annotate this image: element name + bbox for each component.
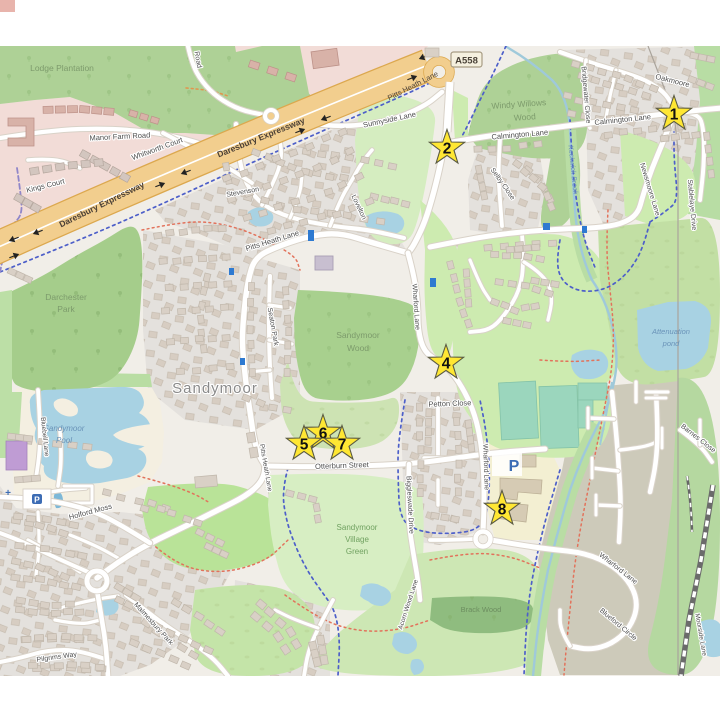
- svg-text:Wood: Wood: [347, 343, 369, 353]
- svg-text:5: 5: [300, 437, 309, 454]
- svg-text:Green: Green: [346, 547, 368, 556]
- svg-text:Pool: Pool: [56, 436, 72, 445]
- svg-text:Sandymoor: Sandymoor: [337, 523, 378, 532]
- svg-text:7: 7: [338, 437, 347, 454]
- svg-text:2: 2: [443, 141, 452, 158]
- svg-text:Park: Park: [57, 304, 75, 314]
- svg-text:1: 1: [670, 107, 679, 124]
- svg-text:pond: pond: [662, 339, 681, 348]
- svg-text:P: P: [509, 458, 520, 475]
- svg-text:P: P: [34, 495, 40, 505]
- svg-text:Sandymoor: Sandymoor: [336, 330, 380, 340]
- svg-text:4: 4: [442, 356, 451, 373]
- svg-text:Sandymoor: Sandymoor: [172, 380, 258, 397]
- svg-text:Wood: Wood: [513, 111, 536, 123]
- svg-text:Attenuation: Attenuation: [651, 327, 690, 336]
- svg-text:Lodge Plantation: Lodge Plantation: [30, 63, 94, 73]
- svg-text:Sandymoor: Sandymoor: [44, 424, 85, 433]
- svg-text:Darchester: Darchester: [45, 292, 87, 302]
- svg-text:Petton Close: Petton Close: [428, 398, 471, 408]
- svg-text:8: 8: [498, 502, 507, 519]
- svg-text:Otterburn Street: Otterburn Street: [315, 460, 370, 471]
- svg-text:Village: Village: [345, 535, 369, 544]
- svg-text:+: +: [5, 488, 11, 499]
- svg-text:Brack Wood: Brack Wood: [461, 605, 502, 614]
- svg-text:A558: A558: [455, 56, 478, 67]
